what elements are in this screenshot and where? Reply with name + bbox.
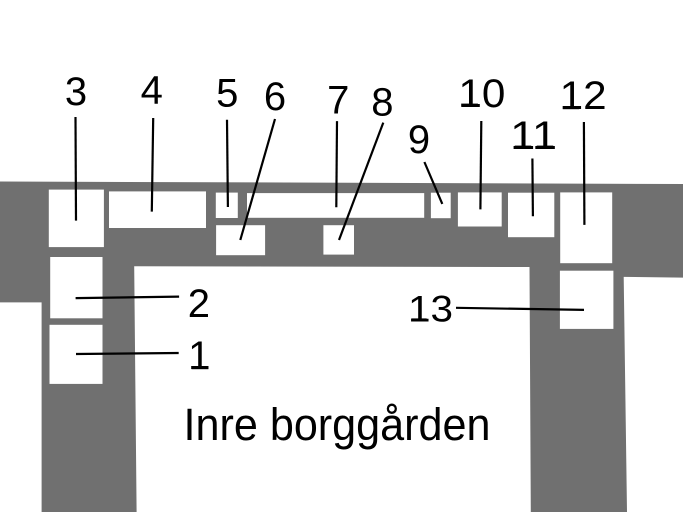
svg-text:10: 10 [458,72,505,116]
svg-text:6: 6 [264,75,286,119]
svg-text:13: 13 [408,288,453,329]
svg-text:9: 9 [408,118,430,162]
svg-text:4: 4 [141,69,163,113]
svg-text:5: 5 [216,72,238,116]
svg-text:12: 12 [560,74,607,118]
svg-text:7: 7 [327,78,349,122]
svg-text:Inre borggården: Inre borggården [184,399,491,450]
svg-text:1: 1 [188,334,210,378]
svg-text:2: 2 [188,282,210,326]
svg-text:3: 3 [65,70,87,114]
svg-text:8: 8 [371,80,393,124]
svg-text:11: 11 [510,114,557,158]
